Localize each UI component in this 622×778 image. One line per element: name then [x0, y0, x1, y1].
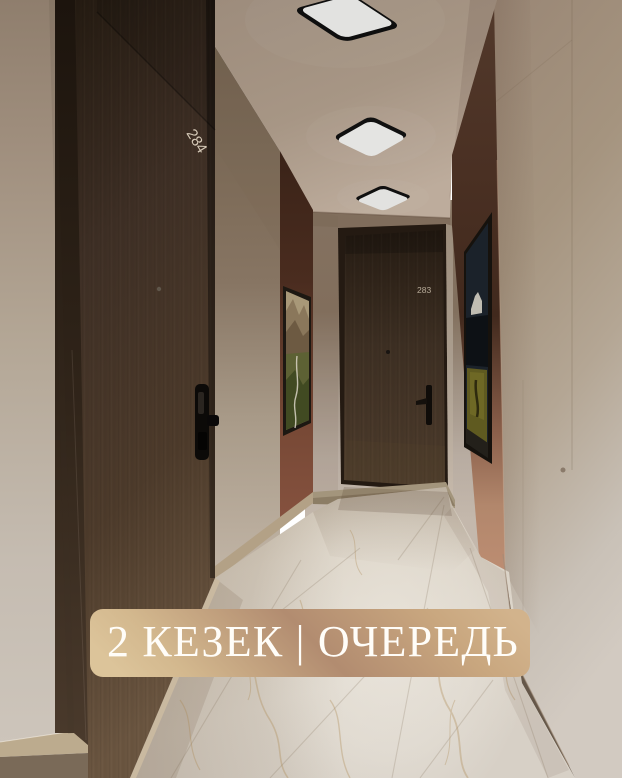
- svg-text:283: 283: [417, 285, 431, 295]
- svg-text:2 КЕЗЕК | ОЧЕРЕДЬ: 2 КЕЗЕК | ОЧЕРЕДЬ: [107, 617, 519, 666]
